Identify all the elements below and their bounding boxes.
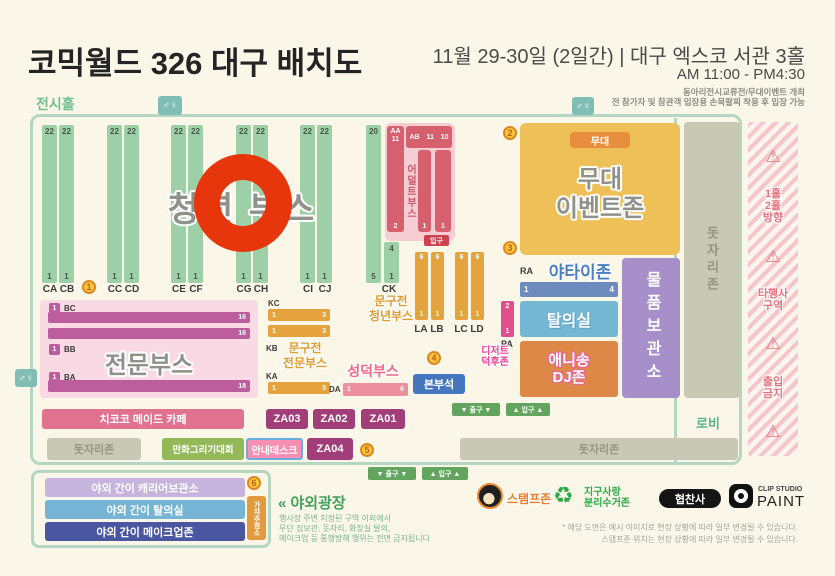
adult-booth-bar-right: 1 bbox=[435, 150, 451, 232]
anisong-dj-zone: 애니송 DJ존 bbox=[520, 341, 618, 397]
seat-bottom: 1 bbox=[436, 311, 440, 318]
seat-first: 1 bbox=[272, 312, 276, 319]
column-label: CG bbox=[236, 284, 252, 295]
mat-zone-left: 돗자리존 bbox=[47, 438, 141, 460]
plaza-title: « 야외광장 bbox=[278, 492, 346, 513]
stage-zone-line1: 무대 bbox=[530, 165, 670, 194]
row-label-ka: KA bbox=[266, 372, 278, 381]
storage-label: 물품보관소 bbox=[639, 271, 663, 386]
column-label: LB bbox=[429, 324, 445, 335]
seat-bottom: 1 bbox=[258, 272, 262, 281]
seat-bottom: 1 bbox=[305, 272, 309, 281]
yatai-row-bar: 14 bbox=[520, 282, 618, 297]
column-label: CB bbox=[59, 284, 75, 295]
seat-bottom: 1 bbox=[241, 272, 245, 281]
seat-top: 22 bbox=[62, 127, 71, 136]
dressing-room: 탈의실 bbox=[520, 301, 618, 337]
restricted-strip: ⚠ 1홀 2홀 방향 ⚠ 타행사 구역 ⚠ 출입 금지 ⚠ bbox=[748, 122, 798, 456]
entry-gate-tag: ▲ 입구 ▲ bbox=[422, 467, 468, 480]
booth-column-ca: 221 bbox=[42, 125, 57, 283]
event-note-2: 전 참가자 및 참관객 입장용 손목팔찌 착용 후 입장 가능 bbox=[400, 96, 805, 108]
seat-first: 1 bbox=[347, 386, 351, 393]
plaza-info-line1: 행사장 주변 지정된 구역 이외에서 bbox=[279, 514, 430, 524]
seat-bottom: 1 bbox=[423, 223, 427, 230]
column-label: CC bbox=[107, 284, 123, 295]
other-event-line2: 구역 bbox=[758, 300, 788, 312]
stationery-pro-line1: 문구전 bbox=[276, 341, 334, 356]
booth-column-cd: 221 bbox=[124, 125, 139, 283]
clip-studio-label-top: CLIP STUDIO bbox=[758, 486, 802, 493]
seat-top: 6 bbox=[420, 254, 424, 261]
stationery-youth-line2: 청년부스 bbox=[364, 309, 418, 324]
booth-row-ba: 18 bbox=[48, 380, 250, 392]
warning-icon: ⚠ bbox=[765, 423, 780, 440]
lobby-label: 로비 bbox=[696, 413, 720, 432]
hall-direction-line3: 방향 bbox=[763, 212, 783, 224]
booth-column-ck-short: 41 bbox=[384, 242, 399, 283]
hall-direction-label: 1홀 2홀 방향 bbox=[763, 188, 783, 224]
adult-booth-bar-top: AB1110 bbox=[406, 126, 452, 148]
seat-bottom: 1 bbox=[476, 311, 480, 318]
footnote-line2: 스탬프존 위치는 현장 상황에 따라 일부 변경될 수 있습니다. bbox=[460, 534, 798, 545]
map-marker-3: 3 bbox=[503, 241, 517, 255]
hall-direction-line2: 2홀 bbox=[763, 200, 783, 212]
pa-strip: 21 bbox=[501, 301, 514, 337]
seat-top: 22 bbox=[256, 127, 265, 136]
seat-bottom: 1 bbox=[129, 272, 133, 281]
recycle-zone-label: 지구사랑 분리수거존 bbox=[584, 487, 630, 509]
row-label-kc: KC bbox=[268, 299, 280, 308]
no-entry-line2: 금지 bbox=[763, 388, 783, 400]
seat-top: 22 bbox=[174, 127, 183, 136]
stationery-pro-line2: 전문부스 bbox=[276, 356, 334, 371]
seat-bottom: 1 bbox=[420, 311, 424, 318]
outdoor-area: 야외 간이 캐리어보관소 야외 간이 탈의실 야외 간이 메이크업존 bbox=[31, 470, 271, 548]
outdoor-carrier-storage: 야외 간이 캐리어보관소 bbox=[45, 478, 245, 497]
exit-gate-tag: ▼ 출구 ▼ bbox=[368, 467, 416, 480]
seat-top: 22 bbox=[320, 127, 329, 136]
restroom-icon: ♂♀ bbox=[15, 369, 37, 387]
seat-num: 10 bbox=[441, 134, 449, 141]
adult-booth-label: 어덜트부스 bbox=[402, 151, 418, 231]
seat-top: 6 bbox=[436, 254, 440, 261]
dessert-line2: 덕후존 bbox=[475, 357, 515, 368]
column-label: LA bbox=[413, 324, 429, 335]
seat-bottom: 1 bbox=[193, 272, 197, 281]
maid-cafe: 치코코 메이드 카페 bbox=[42, 409, 244, 429]
seat-first: 1 bbox=[272, 385, 276, 392]
drawing-contest: 만화그리기대회 bbox=[162, 438, 244, 460]
plaza-info: 행사장 주변 지정된 구역 이외에서 무단 짐보관, 돗자리, 화장실 탈의, … bbox=[279, 514, 430, 544]
no-entry-label: 출입 금지 bbox=[763, 376, 783, 400]
seat-top: 4 bbox=[389, 244, 393, 253]
seat-bottom: 1 bbox=[112, 272, 116, 281]
seat-first: 1 bbox=[272, 328, 276, 335]
event-date-venue: 11월 29-30일 (2일간) | 대구 엑스코 서관 3홀 bbox=[400, 40, 805, 69]
restroom-icon: ♂♀ bbox=[158, 96, 182, 115]
highlight-ring bbox=[194, 154, 292, 252]
seat-bottom: 1 bbox=[389, 272, 393, 281]
exit-gate-tag: ▼ 출구 ▼ bbox=[452, 403, 500, 416]
seat-bottom: 1 bbox=[441, 223, 445, 230]
booth-column-cb: 221 bbox=[59, 125, 74, 283]
booth-column-ld: 61 bbox=[471, 252, 484, 320]
stamp-zone-label: 스탬프존 bbox=[507, 490, 551, 507]
info-desk: 안내데스크 bbox=[246, 438, 303, 460]
stationery-youth-label: 문구전 청년부스 bbox=[364, 294, 418, 324]
adult-booth-area: AA11 2 AB1110 1 1 어덜트부스 입구 bbox=[385, 123, 455, 241]
seat-bottom: 1 bbox=[506, 328, 510, 335]
hall-direction-line1: 1홀 bbox=[763, 188, 783, 200]
plaza-info-line3: 메이크업 등 통행방해 행위는 전면 금지됩니다 bbox=[279, 534, 430, 544]
map-marker-6: 6 bbox=[247, 476, 261, 490]
seat-first: 1 bbox=[524, 285, 528, 294]
column-label: CE bbox=[171, 284, 187, 295]
anisong-line1: 애니송 bbox=[548, 352, 589, 369]
seat-top: 22 bbox=[191, 127, 200, 136]
pro-booth-label: 전문부스 bbox=[40, 345, 258, 380]
recycle-icon: ♻ bbox=[553, 482, 574, 509]
column-label: CJ bbox=[317, 284, 333, 295]
dessert-line1: 디저트 bbox=[475, 346, 515, 357]
seongdeok-label: 성덕부스 bbox=[340, 361, 406, 381]
map-marker-4: 4 bbox=[427, 351, 441, 365]
seat-top: 20 bbox=[369, 127, 378, 136]
za04-booth: ZA04 bbox=[307, 438, 353, 460]
entry-gate-tag: ▲ 입구 ▲ bbox=[506, 403, 550, 416]
sponsor-badge: 협찬사 bbox=[659, 489, 721, 508]
mat-zone-bottom: 돗자리존 bbox=[460, 438, 738, 460]
seat-bottom: 1 bbox=[64, 272, 68, 281]
seat-last: 16 bbox=[238, 314, 246, 321]
column-label: CH bbox=[253, 284, 269, 295]
seat-last: 4 bbox=[610, 285, 614, 294]
warning-icon: ⚠ bbox=[765, 248, 780, 265]
page-title: 코믹월드 326 대구 배치도 bbox=[28, 38, 362, 83]
booth-row-ka: 13 bbox=[268, 382, 330, 394]
seat-bottom: 2 bbox=[394, 223, 398, 230]
stage-zone-label: 무대 이벤트존 bbox=[530, 165, 670, 223]
seat-top: 2 bbox=[506, 303, 510, 310]
column-label: CI bbox=[300, 284, 316, 295]
warning-icon: ⚠ bbox=[765, 335, 780, 352]
seat-last: 3 bbox=[322, 312, 326, 319]
other-event-label: 타행사 구역 bbox=[758, 288, 788, 312]
plaza-info-line2: 무단 짐보관, 돗자리, 화장실 탈의, bbox=[279, 524, 430, 534]
stage-zone-line2: 이벤트존 bbox=[530, 194, 670, 223]
recycle-line1: 지구사랑 bbox=[584, 487, 630, 498]
seat-top: 6 bbox=[460, 254, 464, 261]
other-event-line1: 타행사 bbox=[758, 288, 788, 300]
recycle-line2: 분리수거존 bbox=[584, 498, 630, 509]
adult-booth-entrance-tag: 입구 bbox=[424, 235, 449, 246]
hall-label: 전시홀 bbox=[36, 94, 75, 114]
booth-row-bc: 16 bbox=[48, 312, 250, 323]
booth-column-lb: 61 bbox=[431, 252, 444, 320]
booth-column-la: 61 bbox=[415, 252, 428, 320]
stationery-pro-label: 문구전 전문부스 bbox=[276, 341, 334, 371]
map-marker-5: 5 bbox=[360, 443, 374, 457]
gacha-label: 가챠추첨소 bbox=[253, 501, 260, 536]
stationery-youth-line1: 문구전 bbox=[364, 294, 418, 309]
row-label: AA bbox=[390, 128, 400, 135]
no-entry-line1: 출입 bbox=[763, 376, 783, 388]
seat-last: 3 bbox=[322, 328, 326, 335]
seat-num: 11 bbox=[426, 134, 433, 141]
seat-top: 22 bbox=[127, 127, 136, 136]
row-label-da: DA bbox=[329, 385, 341, 394]
anisong-line2: DJ존 bbox=[548, 369, 589, 386]
seat-bottom: 1 bbox=[176, 272, 180, 281]
yatai-zone-label: 야타이존 bbox=[540, 258, 620, 283]
seat-bottom: 1 bbox=[460, 311, 464, 318]
column-label: CD bbox=[124, 284, 140, 295]
booth-row-da: 16 bbox=[343, 383, 408, 396]
za01-booth: ZA01 bbox=[361, 409, 405, 429]
seat-top: 11 bbox=[392, 136, 399, 143]
column-label: LD bbox=[469, 324, 485, 335]
seat-last: 3 bbox=[322, 385, 326, 392]
clip-studio-label-bottom: PAINT bbox=[757, 493, 805, 510]
seat-bottom: 5 bbox=[371, 272, 375, 281]
pro-booth-area: 1 BC 16 16 1 BB 1 BA 18 전문부스 bbox=[40, 300, 258, 398]
map-marker-1: 1 bbox=[82, 280, 96, 294]
stamp-zone-icon bbox=[477, 483, 503, 509]
dessert-zone-label: 디저트 덕후존 bbox=[475, 346, 515, 368]
seat-top: 6 bbox=[476, 254, 480, 261]
seat-top: 22 bbox=[303, 127, 312, 136]
seat-last: 6 bbox=[400, 386, 404, 393]
seat-bottom: 1 bbox=[47, 272, 51, 281]
comic-world-floor-map: 코믹월드 326 대구 배치도 11월 29-30일 (2일간) | 대구 엑스… bbox=[0, 0, 835, 576]
booth-column-lc: 61 bbox=[455, 252, 468, 320]
event-time: AM 11:00 - PM4:30 bbox=[400, 66, 805, 83]
booth-row-bb: 16 bbox=[48, 328, 250, 339]
column-label: CF bbox=[188, 284, 204, 295]
outdoor-dressing: 야외 간이 탈의실 bbox=[45, 500, 245, 519]
hq-seat: 본부석 bbox=[413, 374, 465, 394]
seat-last: 18 bbox=[238, 383, 246, 390]
seat-top: 22 bbox=[110, 127, 119, 136]
restroom-icon: ♂♀ bbox=[572, 97, 594, 115]
seat-top: 22 bbox=[45, 127, 54, 136]
mat-zone-vertical: 돗자리존 bbox=[684, 122, 740, 398]
booth-column-cc: 221 bbox=[107, 125, 122, 283]
storage-zone: 물품보관소 bbox=[622, 258, 680, 398]
za02-booth: ZA02 bbox=[313, 409, 355, 429]
footnote-line1: * 해당 도면은 예시 이미지로 현장 상황에 따라 일부 변경될 수 있습니다… bbox=[460, 522, 798, 533]
gacha-raffle: 가챠추첨소 bbox=[247, 496, 266, 540]
seat-top: 22 bbox=[239, 127, 248, 136]
warning-icon: ⚠ bbox=[765, 148, 780, 165]
za03-booth: ZA03 bbox=[266, 409, 308, 429]
stage-event-zone: 무대 무대 이벤트존 bbox=[520, 123, 680, 255]
clip-studio-icon bbox=[729, 484, 753, 508]
row-label-ra: RA bbox=[520, 266, 533, 276]
seat-bottom: 1 bbox=[322, 272, 326, 281]
stage-badge: 무대 bbox=[570, 132, 630, 148]
booth-row-kc: 13 bbox=[268, 309, 330, 321]
outdoor-makeup: 야외 간이 메이크업존 bbox=[45, 522, 245, 541]
mat-zone-label: 돗자리존 bbox=[703, 226, 722, 294]
row-label: AB bbox=[409, 134, 419, 141]
booth-column-ck-tall: 205 bbox=[366, 125, 381, 283]
column-label: LC bbox=[453, 324, 469, 335]
seat-last: 16 bbox=[238, 330, 246, 337]
column-label: CA bbox=[42, 284, 58, 295]
map-marker-2: 2 bbox=[503, 126, 517, 140]
adult-booth-bar-mid: 1 bbox=[418, 150, 431, 232]
booth-row-kb: 13 bbox=[268, 325, 330, 337]
